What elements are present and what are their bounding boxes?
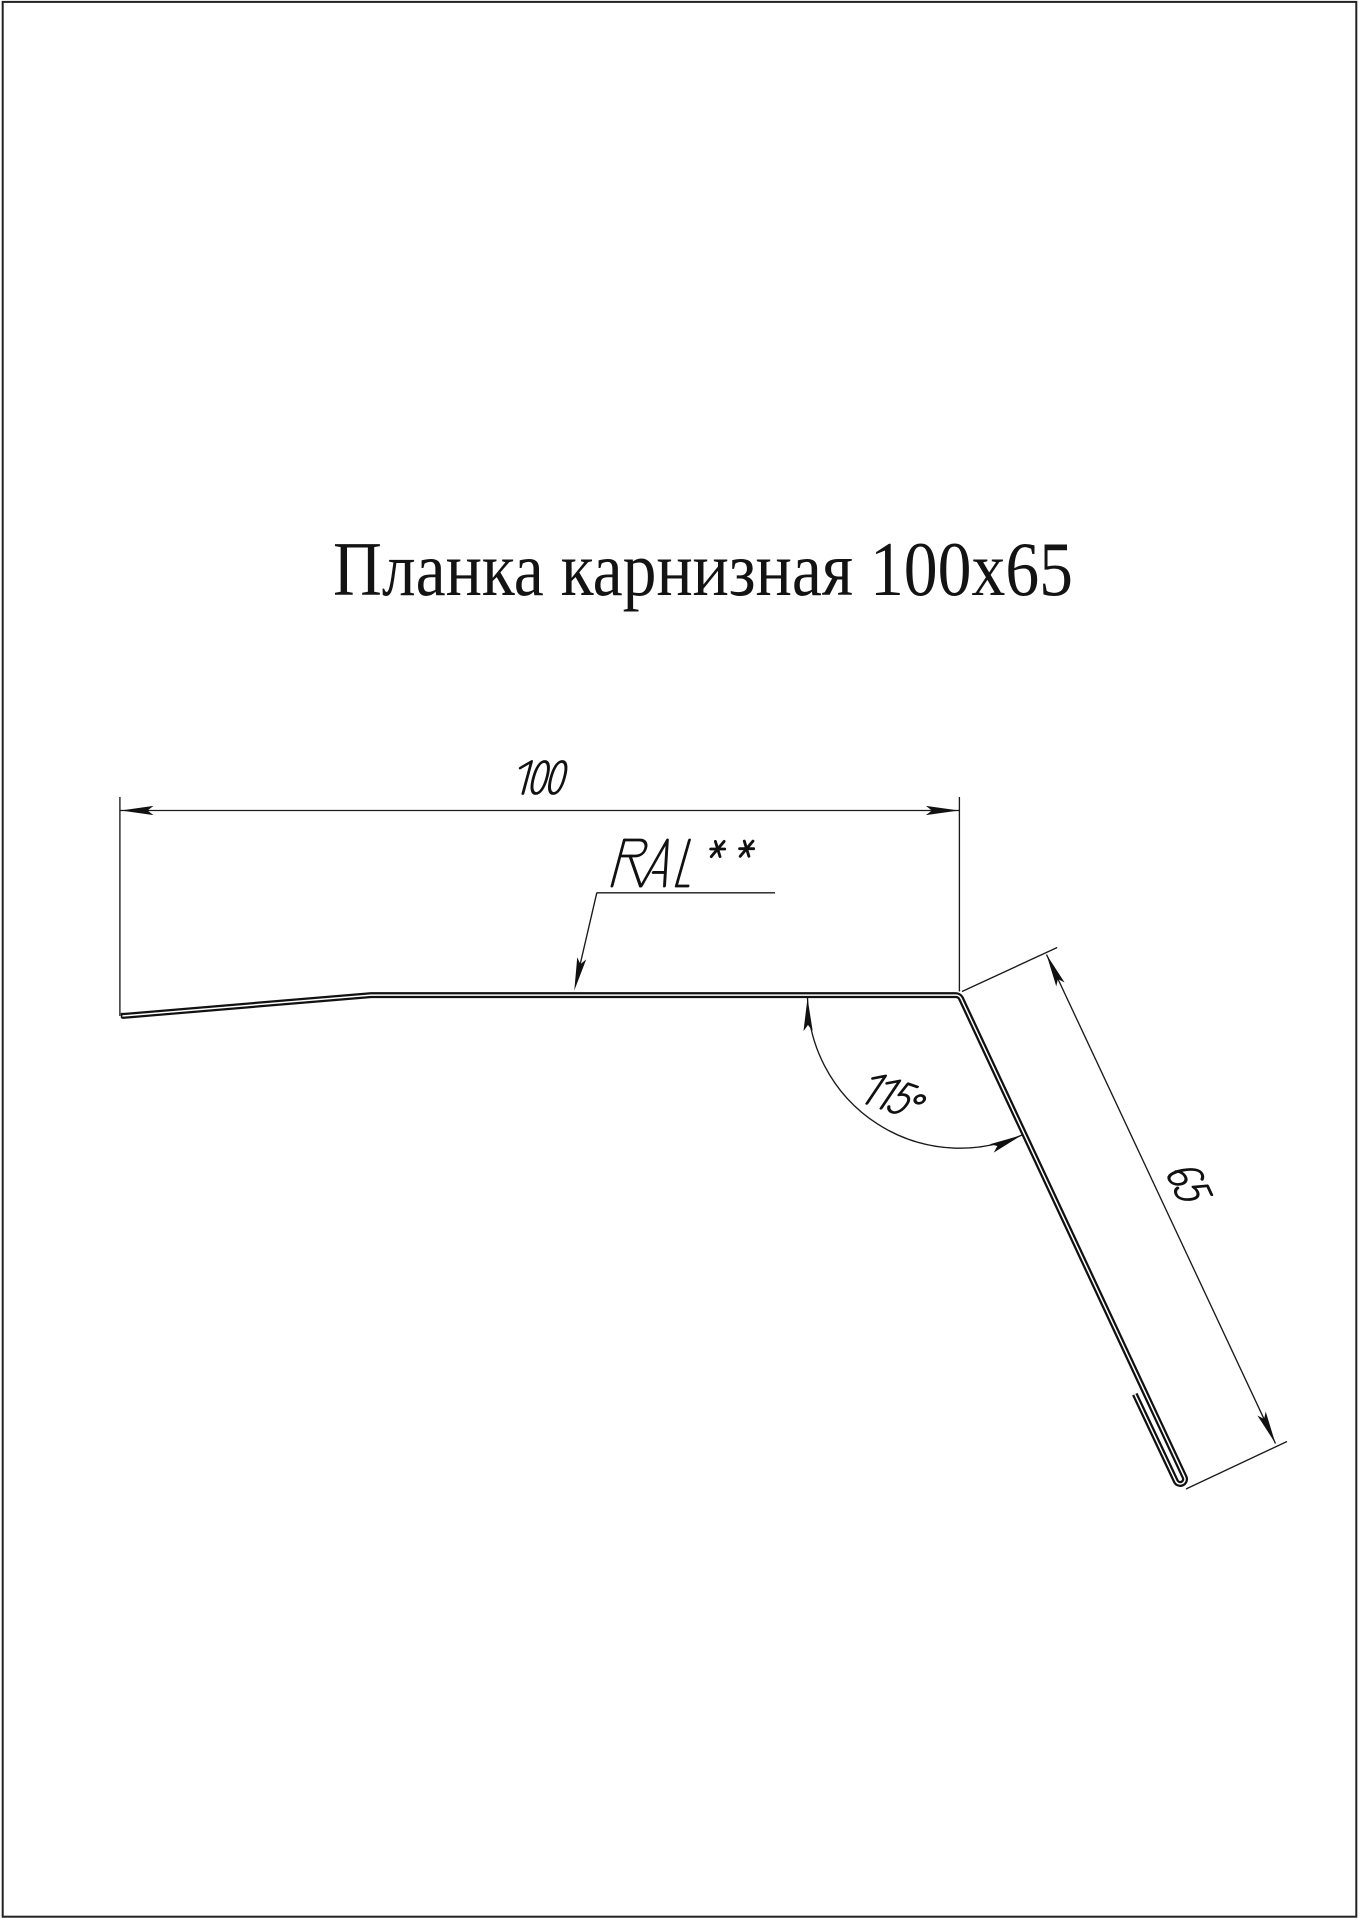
svg-text:Планка карнизная 100х65: Планка карнизная 100х65 [333, 526, 1073, 612]
